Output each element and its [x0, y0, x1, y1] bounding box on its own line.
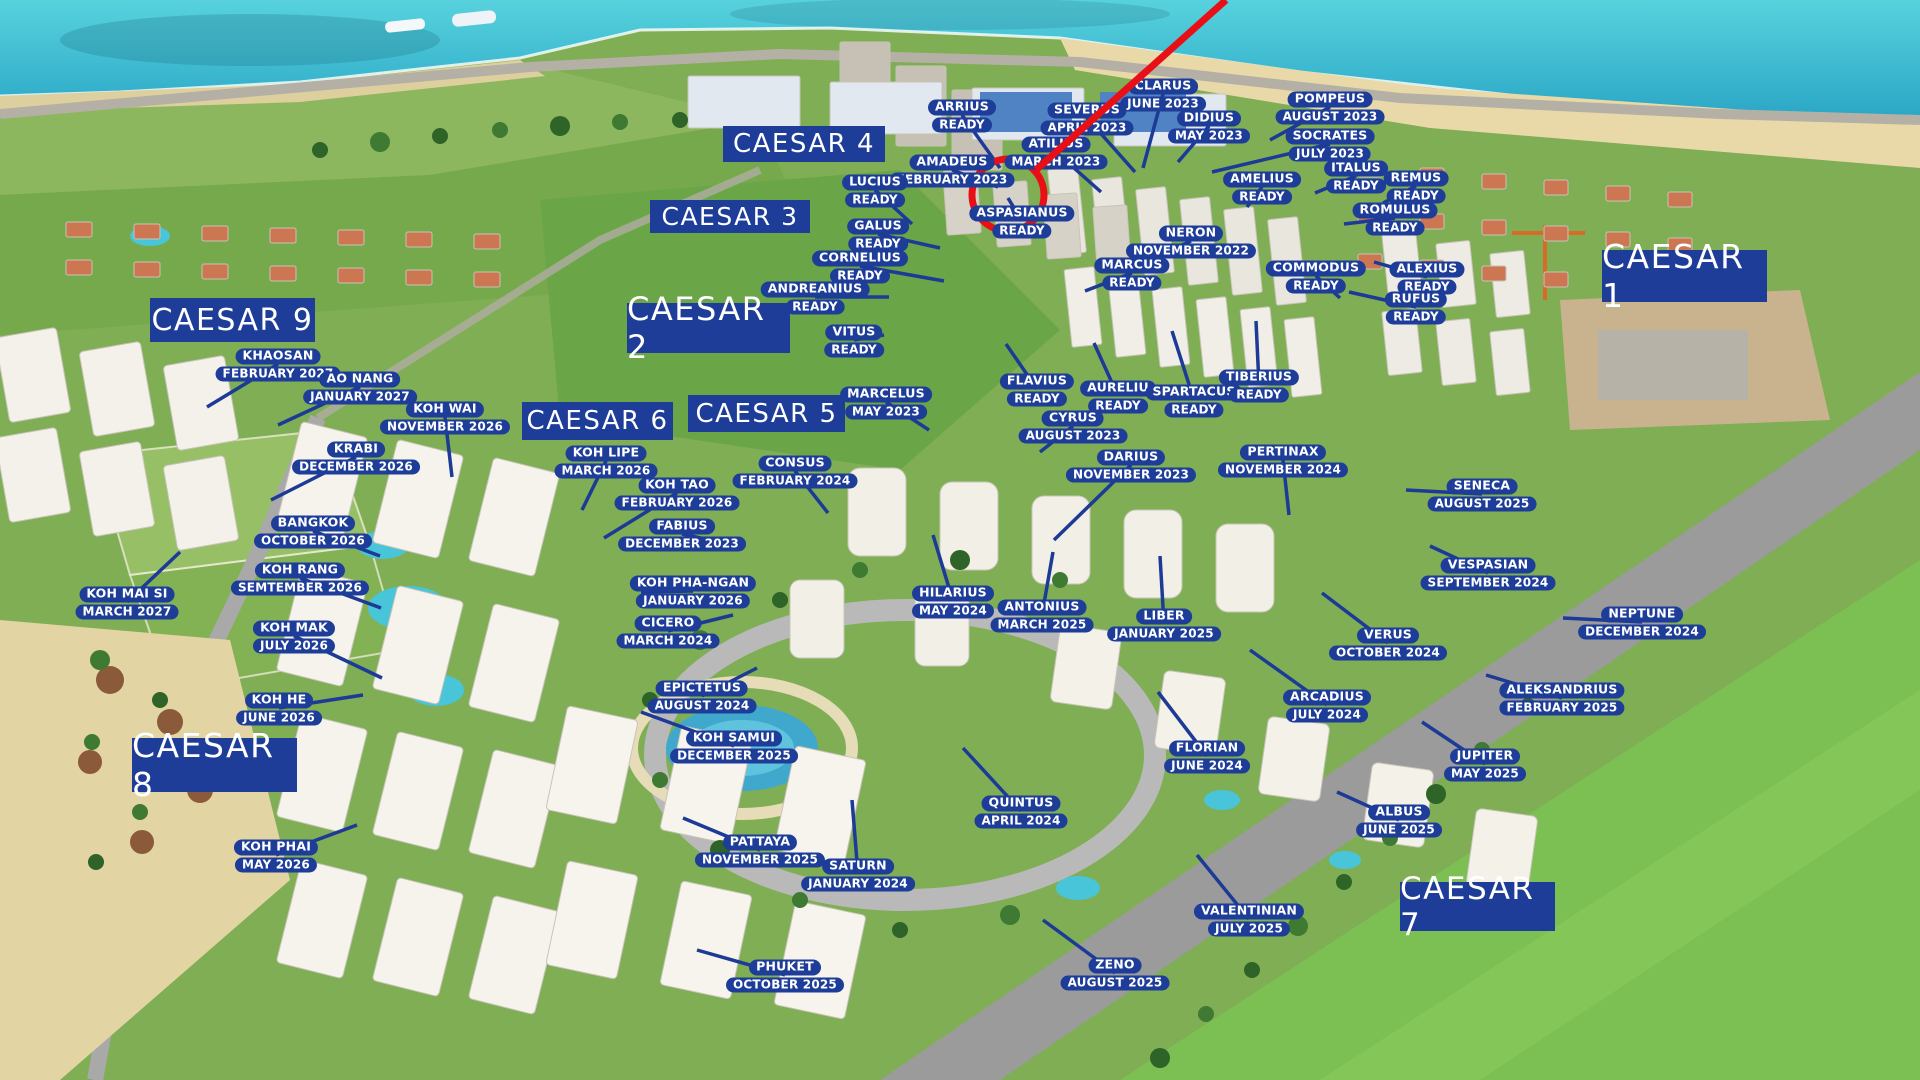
building-date: NOVEMBER 2023	[1066, 467, 1196, 482]
building-label-valentinian: VALENTINIANJULY 2025	[1194, 902, 1304, 937]
zone-label-caesar-2: CAESAR 2	[627, 303, 790, 353]
building-date: READY	[1007, 391, 1067, 406]
building-date: OCTOBER 2024	[1329, 645, 1447, 660]
building-name: LIBER	[1136, 609, 1191, 625]
building-date: READY	[1326, 178, 1386, 193]
building-name: BANGKOK	[271, 516, 356, 532]
building-label-cicero: CICEROMARCH 2024	[617, 614, 720, 649]
building-date: READY	[932, 117, 992, 132]
building-name: QUINTUS	[982, 796, 1061, 812]
building-date: FEBRUARY 2026	[615, 495, 740, 510]
building-name: VESPASIAN	[1441, 558, 1536, 574]
building-name: LUCIUS	[842, 175, 908, 191]
building-date: READY	[1386, 309, 1446, 324]
building-label-koh-phai: KOH PHAIMAY 2026	[234, 838, 318, 873]
building-name: AMELIUS	[1223, 172, 1301, 188]
building-name: CORNELIUS	[812, 251, 908, 267]
building-name: GALUS	[847, 219, 909, 235]
building-label-zeno: ZENOAUGUST 2025	[1061, 956, 1170, 991]
building-label-koh-mak: KOH MAKJULY 2026	[253, 619, 335, 654]
building-name: RUFUS	[1385, 292, 1447, 308]
building-name: CONSUS	[758, 456, 832, 472]
building-label-cyrus: CYRUSAUGUST 2023	[1019, 409, 1128, 444]
building-name: KOH HE	[245, 693, 314, 709]
building-date: MARCH 2025	[991, 617, 1094, 632]
building-date: SEPTEMBER 2024	[1421, 575, 1556, 590]
building-name: SENECA	[1447, 479, 1518, 495]
building-name: KOH PHA-NGAN	[630, 576, 756, 592]
building-label-koh-he: KOH HEJUNE 2026	[236, 691, 322, 726]
building-name: NEPTUNE	[1601, 607, 1682, 623]
building-label-koh-rang: KOH RANGSEMTEMBER 2026	[231, 561, 369, 596]
building-date: JANUARY 2026	[636, 593, 750, 608]
building-label-consus: CONSUSFEBRUARY 2024	[733, 454, 858, 489]
zone-label-caesar-7: CAESAR 7	[1400, 882, 1555, 931]
building-name: PATTAYA	[723, 835, 798, 851]
building-name: MARCELUS	[840, 387, 932, 403]
building-label-albus: ALBUSJUNE 2025	[1356, 803, 1442, 838]
building-label-bangkok: BANGKOKOCTOBER 2026	[254, 514, 372, 549]
building-date: READY	[992, 223, 1052, 238]
building-label-remus: REMUSREADY	[1384, 169, 1449, 204]
building-date: MAY 2023	[845, 404, 927, 419]
building-name: ALEXIUS	[1389, 262, 1464, 278]
building-name: HILARIUS	[912, 586, 994, 602]
building-name: KOH MAK	[253, 621, 335, 637]
building-label-jupiter: JUPITERMAY 2025	[1444, 747, 1526, 782]
building-label-vitus: VITUSREADY	[824, 323, 884, 358]
building-name: ROMULUS	[1353, 203, 1438, 219]
building-name: ASPASIANUS	[969, 206, 1074, 222]
building-name: KRABI	[327, 442, 385, 458]
building-date: AUGUST 2023	[1276, 109, 1385, 124]
building-name: KOH PHAI	[234, 840, 318, 856]
building-label-liber: LIBERJANUARY 2025	[1107, 607, 1221, 642]
building-label-italus: ITALUSREADY	[1324, 159, 1388, 194]
building-label-lucius: LUCIUSREADY	[842, 173, 908, 208]
building-label-marcus: MARCUSREADY	[1094, 256, 1169, 291]
zone-label-caesar-5: CAESAR 5	[688, 395, 845, 432]
building-label-koh-tao: KOH TAOFEBRUARY 2026	[615, 476, 740, 511]
building-date: AUGUST 2024	[648, 698, 757, 713]
building-date: READY	[1229, 387, 1289, 402]
building-date: MAY 2026	[235, 857, 317, 872]
building-name: KOH MAI SI	[79, 587, 174, 603]
building-label-arcadius: ARCADIUSJULY 2024	[1283, 688, 1371, 723]
building-date: JUNE 2025	[1356, 822, 1442, 837]
building-date: READY	[1232, 189, 1292, 204]
building-date: NOVEMBER 2024	[1218, 462, 1348, 477]
building-label-amadeus: AMADEUSFEBRUARY 2023	[890, 153, 1015, 188]
building-name: MARCUS	[1094, 258, 1169, 274]
building-name: EPICTETUS	[656, 681, 748, 697]
building-name: REMUS	[1384, 171, 1449, 187]
building-date: MAY 2023	[1168, 128, 1250, 143]
building-name: PERTINAX	[1240, 445, 1325, 461]
building-name: JUPITER	[1450, 749, 1521, 765]
building-label-marcelus: MARCELUSMAY 2023	[840, 385, 932, 420]
building-label-hilarius: HILARIUSMAY 2024	[912, 584, 994, 619]
building-label-epictetus: EPICTETUSAUGUST 2024	[648, 679, 757, 714]
building-label-rufus: RUFUSREADY	[1385, 290, 1447, 325]
building-name: KOH SAMUI	[686, 731, 782, 747]
building-date: JANUARY 2024	[801, 876, 915, 891]
building-name: FABIUS	[649, 519, 714, 535]
building-date: DECEMBER 2025	[670, 748, 798, 763]
building-name: VERUS	[1357, 628, 1419, 644]
building-date: DECEMBER 2024	[1578, 624, 1706, 639]
building-date: MARCH 2024	[617, 633, 720, 648]
building-name: DARIUS	[1097, 450, 1166, 466]
building-date: AUGUST 2025	[1061, 975, 1170, 990]
building-label-flavius: FLAVIUSREADY	[1000, 372, 1074, 407]
building-name: SEVERUS	[1047, 103, 1127, 119]
building-name: AMADEUS	[909, 155, 994, 171]
resort-master-plan-map: ARRIUSREADYCLARUSJUNE 2023SEVERUSAPRIL 2…	[0, 0, 1920, 1080]
building-date: JANUARY 2025	[1107, 626, 1221, 641]
building-label-aleksandrius: ALEKSANDRIUSFEBRUARY 2025	[1499, 681, 1624, 716]
building-label-saturn: SATURNJANUARY 2024	[801, 857, 915, 892]
building-date: FEBRUARY 2023	[890, 172, 1015, 187]
building-date: READY	[1164, 402, 1224, 417]
building-name: SATURN	[822, 859, 894, 875]
building-name: CYRUS	[1042, 411, 1104, 427]
building-date: APRIL 2023	[1040, 120, 1133, 135]
zone-label-caesar-3: CAESAR 3	[650, 200, 810, 233]
building-name: KOH WAI	[406, 402, 484, 418]
building-label-fabius: FABIUSDECEMBER 2023	[618, 517, 746, 552]
building-label-florian: FLORIANJUNE 2024	[1164, 739, 1250, 774]
building-name: ITALUS	[1324, 161, 1388, 177]
building-label-commodus: COMMODUSREADY	[1266, 259, 1366, 294]
building-name: ALEKSANDRIUS	[1499, 683, 1624, 699]
building-name: TIBERIUS	[1219, 370, 1299, 386]
building-date: READY	[845, 192, 905, 207]
building-label-aspasianus: ASPASIANUSREADY	[969, 204, 1074, 239]
building-label-socrates: SOCRATESJULY 2023	[1286, 127, 1375, 162]
building-name: FLAVIUS	[1000, 374, 1074, 390]
building-label-arrius: ARRIUSREADY	[928, 98, 996, 133]
building-label-neptune: NEPTUNEDECEMBER 2024	[1578, 605, 1706, 640]
building-name: CLARUS	[1128, 79, 1199, 95]
building-date: READY	[1102, 275, 1162, 290]
building-name: DIDIUS	[1177, 111, 1241, 127]
building-date: OCTOBER 2026	[254, 533, 372, 548]
building-label-didius: DIDIUSMAY 2023	[1168, 109, 1250, 144]
building-label-koh-wai: KOH WAINOVEMBER 2026	[380, 400, 510, 435]
building-name: ATILIUS	[1021, 137, 1090, 153]
building-date: READY	[1286, 278, 1346, 293]
building-date: AUGUST 2023	[1019, 428, 1128, 443]
building-name: CICERO	[635, 616, 702, 632]
building-date: MARCH 2027	[76, 604, 179, 619]
building-name: ANTONIUS	[997, 600, 1086, 616]
building-date: READY	[824, 342, 884, 357]
building-name: ARRIUS	[928, 100, 996, 116]
building-label-neron: NERONNOVEMBER 2022	[1126, 224, 1256, 259]
building-name: SOCRATES	[1286, 129, 1375, 145]
building-date: JULY 2025	[1208, 921, 1290, 936]
building-name: NERON	[1159, 226, 1224, 242]
building-date: JUNE 2026	[236, 710, 322, 725]
building-name: KOH TAO	[638, 478, 716, 494]
zone-label-caesar-1: CAESAR 1	[1602, 250, 1767, 302]
building-label-amelius: AMELIUSREADY	[1223, 170, 1301, 205]
building-label-tiberius: TIBERIUSREADY	[1219, 368, 1299, 403]
zone-label-caesar-8: CAESAR 8	[132, 738, 297, 792]
building-date: MAY 2025	[1444, 766, 1526, 781]
building-name: VITUS	[825, 325, 882, 341]
building-label-koh-pha-ngan: KOH PHA-NGANJANUARY 2026	[630, 574, 756, 609]
building-label-pompeus: POMPEUSAUGUST 2023	[1276, 90, 1385, 125]
building-label-pertinax: PERTINAXNOVEMBER 2024	[1218, 443, 1348, 478]
building-label-vespasian: VESPASIANSEPTEMBER 2024	[1421, 556, 1556, 591]
building-date: JULY 2026	[253, 638, 335, 653]
building-label-koh-lipe: KOH LIPEMARCH 2026	[555, 444, 658, 479]
building-name: POMPEUS	[1288, 92, 1372, 108]
building-name: KHAOSAN	[236, 349, 321, 365]
zone-label-caesar-4: CAESAR 4	[723, 126, 885, 162]
building-name: ALBUS	[1368, 805, 1429, 821]
building-name: PHUKET	[749, 960, 821, 976]
building-name: VALENTINIAN	[1194, 904, 1304, 920]
zone-label-caesar-6: CAESAR 6	[522, 402, 673, 440]
building-label-krabi: KRABIDECEMBER 2026	[292, 440, 420, 475]
building-name: KOH RANG	[255, 563, 345, 579]
building-date: DECEMBER 2023	[618, 536, 746, 551]
building-date: JULY 2024	[1286, 707, 1368, 722]
building-date: FEBRUARY 2025	[1500, 700, 1625, 715]
building-name: AO NANG	[320, 372, 401, 388]
reef	[60, 14, 440, 66]
building-name: ZENO	[1088, 958, 1142, 974]
building-date: READY	[1365, 220, 1425, 235]
building-label-cornelius: CORNELIUSREADY	[812, 249, 908, 284]
building-label-koh-samui: KOH SAMUIDECEMBER 2025	[670, 729, 798, 764]
building-date: MARCH 2023	[1005, 154, 1108, 169]
building-date: DECEMBER 2026	[292, 459, 420, 474]
building-date: AUGUST 2025	[1428, 496, 1537, 511]
building-date: READY	[785, 299, 845, 314]
building-name: COMMODUS	[1266, 261, 1366, 277]
building-name: ARCADIUS	[1283, 690, 1371, 706]
building-date: SEMTEMBER 2026	[231, 580, 369, 595]
building-label-quintus: QUINTUSAPRIL 2024	[974, 794, 1067, 829]
building-label-darius: DARIUSNOVEMBER 2023	[1066, 448, 1196, 483]
zone-label-caesar-9: CAESAR 9	[150, 298, 315, 342]
building-label-severus: SEVERUSAPRIL 2023	[1040, 101, 1133, 136]
building-date: FEBRUARY 2024	[733, 473, 858, 488]
building-date: APRIL 2024	[974, 813, 1067, 828]
building-label-verus: VERUSOCTOBER 2024	[1329, 626, 1447, 661]
building-label-phuket: PHUKETOCTOBER 2025	[726, 958, 844, 993]
building-label-koh-mai-si: KOH MAI SIMARCH 2027	[76, 585, 179, 620]
building-under-construction	[1598, 330, 1748, 400]
building-label-romulus: ROMULUSREADY	[1353, 201, 1438, 236]
building-label-seneca: SENECAAUGUST 2025	[1428, 477, 1537, 512]
building-label-galus: GALUSREADY	[847, 217, 909, 252]
building-date: JUNE 2024	[1164, 758, 1250, 773]
building-name: FLORIAN	[1169, 741, 1246, 757]
building-date: MAY 2024	[912, 603, 994, 618]
building-label-atilius: ATILIUSMARCH 2023	[1005, 135, 1108, 170]
building-date: NOVEMBER 2026	[380, 419, 510, 434]
building-date: OCTOBER 2025	[726, 977, 844, 992]
building-name: KOH LIPE	[566, 446, 646, 462]
building-label-antonius: ANTONIUSMARCH 2025	[991, 598, 1094, 633]
